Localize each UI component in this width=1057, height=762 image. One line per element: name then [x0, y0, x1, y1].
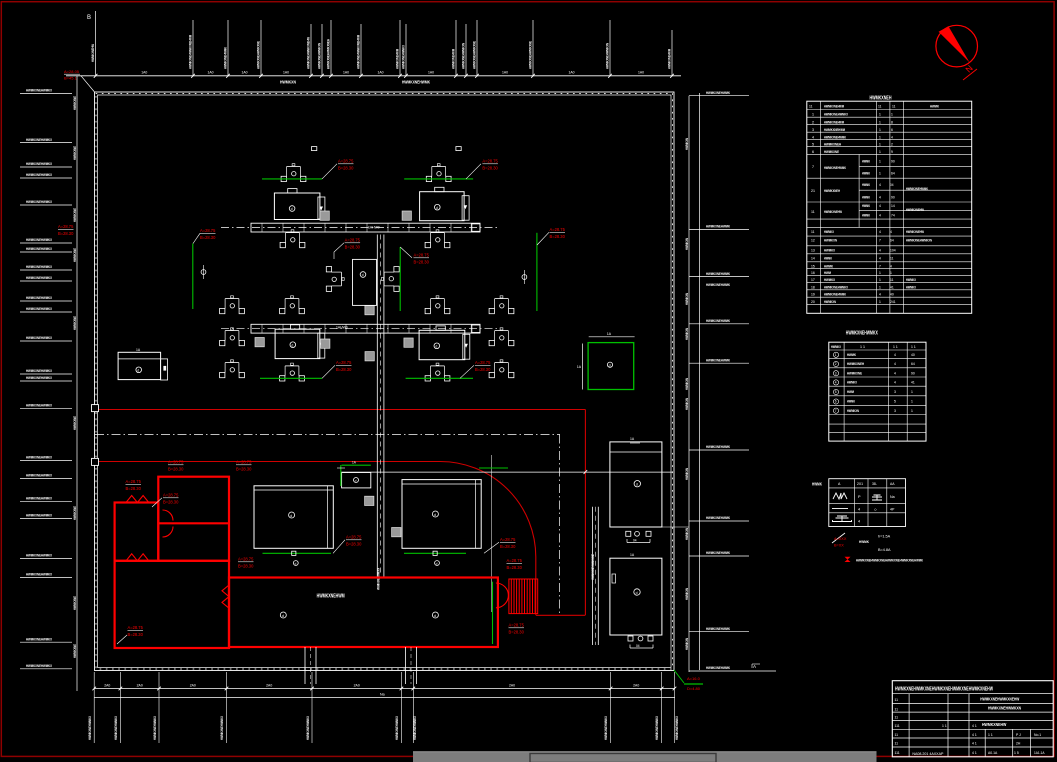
svg-text:1: 1 — [891, 113, 893, 117]
svg-text:d: d — [362, 273, 364, 277]
svg-text:1: 1 — [879, 285, 881, 289]
svg-text:HWMKXNEHWMKX: HWMKXNEHWMKX — [306, 716, 310, 740]
svg-text:HWMKXN: HWMKXN — [685, 528, 689, 540]
svg-text:d: d — [436, 206, 438, 210]
svg-text:1: 1 — [879, 128, 881, 132]
svg-text:7: 7 — [879, 264, 881, 268]
svg-text:11: 11 — [895, 742, 899, 746]
svg-text:HWMKXNEHWMKXN: HWMKXNEHWMKXN — [377, 568, 381, 590]
svg-text:3: 3 — [835, 371, 837, 375]
svg-text:HWMKXNEHWM: HWMKXNEHWM — [668, 49, 672, 69]
svg-text:HWMKXNEHWMKX: HWMKXNEHWMKX — [604, 716, 608, 740]
svg-text:HWMKXNEHWMKX: HWMKXNEHWMKX — [26, 513, 52, 518]
svg-text:HWMK: HWMK — [847, 400, 855, 404]
svg-text:2X1: 2X1 — [857, 482, 863, 486]
svg-text:11: 11 — [890, 256, 894, 260]
svg-text:B=28.30: B=28.30 — [550, 234, 566, 239]
svg-text:B=28.30: B=28.30 — [126, 486, 142, 491]
svg-text:d: d — [434, 614, 436, 618]
svg-text:A=16.0: A=16.0 — [687, 676, 701, 681]
svg-text:64: 64 — [891, 172, 895, 176]
svg-text:HWMKXNEHWMK: HWMKXNEHWMK — [824, 166, 846, 170]
svg-text:A=XXX: A=XXX — [834, 537, 847, 541]
svg-text:HWMKXNEHWMKX: HWMKXNEHWMKX — [413, 716, 417, 740]
svg-text:64: 64 — [911, 362, 915, 366]
svg-text:HWMKXNEHWM: HWMKXNEHWM — [824, 120, 844, 124]
svg-text:HWMKXNE: HWMKXNE — [73, 505, 77, 520]
svg-text:HWMKXNEHW: HWMKXNEHW — [906, 230, 924, 234]
svg-text:HWMKXNEHWMKXNEHW: HWMKXNEHWMKXNEHW — [307, 37, 311, 69]
svg-text:A=28.75: A=28.75 — [346, 535, 362, 540]
svg-text:2: 2 — [812, 120, 814, 124]
svg-text:4: 4 — [879, 256, 881, 260]
svg-text:1A0: 1A0 — [283, 71, 289, 75]
svg-text:HWMKXNEHWMKX: HWMKXNEHWMKX — [26, 375, 52, 380]
svg-text:4: 4 — [879, 230, 881, 234]
svg-text:7: 7 — [812, 165, 814, 169]
svg-text:HWMKXNEHWMKX: HWMKXNEHWMKX — [26, 161, 52, 166]
svg-text:HWMKXNEHWMKX: HWMKXNEHWMKX — [88, 716, 92, 740]
svg-text:1 1: 1 1 — [860, 345, 865, 349]
svg-text:d: d — [292, 343, 294, 347]
svg-text:HWMKXNEHWMK: HWMKXNEHWMK — [224, 47, 228, 69]
svg-text:4 1: 4 1 — [972, 751, 977, 755]
svg-text:1A0: 1A0 — [241, 71, 247, 75]
svg-text:HWMKXN: HWMKXN — [685, 293, 689, 305]
svg-text:HWMK: HWMK — [847, 353, 856, 357]
svg-text:11: 11 — [811, 230, 815, 234]
svg-text:HWMKXNEHWMKX: HWMKXNEHWMKX — [26, 553, 52, 558]
svg-text:d: d — [436, 345, 438, 349]
svg-text:HWMKXNEHWMKXNE: HWMKXNEHWMKXNE — [473, 41, 477, 69]
svg-text:HWMKXNEHWMKX: HWMKXNEHWMKX — [26, 295, 52, 300]
svg-text:HWMKXNEHWM: HWMKXNEHWM — [452, 49, 456, 69]
svg-text:B=28.30: B=28.30 — [128, 632, 144, 637]
svg-text:HWMKXNE: HWMKXNE — [73, 595, 77, 610]
svg-text:HWMKXNEHWMKXNEHWM: HWMKXNEHWMKXNEHWM — [357, 35, 361, 69]
svg-text:5: 5 — [812, 143, 814, 147]
svg-text:HWMKXNEHWMKXN: HWMKXNEHWMKXN — [318, 43, 322, 69]
svg-text:HWMKXNEHWMK: HWMKXNEHWMK — [706, 90, 730, 95]
svg-text:14: 14 — [891, 204, 895, 208]
svg-text:P J: P J — [1016, 733, 1021, 737]
svg-text:HWMKXNEHWMK: HWMKXNEHWMK — [706, 550, 730, 555]
svg-text:1: 1 — [879, 278, 881, 282]
svg-text:64: 64 — [890, 239, 894, 243]
svg-text:1A: 1A — [630, 437, 635, 441]
svg-text:d: d — [137, 368, 139, 372]
svg-text:4 1: 4 1 — [972, 733, 977, 737]
svg-text:B=28.30: B=28.30 — [200, 235, 216, 240]
svg-text:d: d — [636, 483, 638, 487]
svg-text:1 1: 1 1 — [893, 345, 898, 349]
svg-text:1: 1 — [911, 400, 913, 404]
svg-text:20: 20 — [811, 300, 815, 304]
svg-text:HWMKXNEH: HWMKXNEH — [824, 143, 841, 147]
svg-text:1: 1 — [879, 120, 881, 124]
svg-text:2: 2 — [891, 143, 893, 147]
svg-text:HWMKXN: HWMKXN — [824, 300, 836, 304]
svg-text:HWMKXNEHWM: HWMKXNEHWM — [317, 594, 345, 600]
svg-text:1A: 1A — [136, 348, 141, 352]
svg-text:A=28.75: A=28.75 — [414, 253, 430, 258]
svg-text:1AHW0: 1AHW0 — [368, 225, 380, 229]
svg-text:HWMKXNE: HWMKXNE — [73, 415, 77, 430]
svg-text:HWMKXNE: HWMKXNE — [73, 315, 77, 330]
svg-text:HWMKXNEH: HWMKXNEH — [847, 362, 864, 366]
svg-text:HWMKXN: HWMKXN — [824, 239, 837, 243]
svg-text:A: A — [753, 664, 756, 669]
svg-text:2A0: 2A0 — [104, 683, 110, 687]
svg-text:B=4.8A: B=4.8A — [878, 548, 891, 552]
svg-text:1A0: 1A0 — [377, 71, 383, 75]
svg-text:HWMKXNEHWMK: HWMKXNEHWMK — [706, 318, 730, 323]
svg-text:4: 4 — [894, 371, 896, 375]
svg-text:HWMKXNEHWMKX: HWMKXNEHWMKX — [26, 246, 52, 251]
svg-text:1A0: 1A0 — [568, 71, 574, 75]
svg-text:HWMKXNEHWMKX: HWMKXNEHWMKX — [26, 496, 52, 501]
svg-text:HWMKXNE: HWMKXNE — [73, 247, 77, 262]
svg-text:1: 1 — [879, 113, 881, 117]
svg-text:HWMKXN: HWMKXN — [685, 588, 689, 600]
svg-text:HWMKXNEHWMKXN: HWMKXNEHWMKXN — [606, 43, 610, 69]
svg-text:1: 1 — [890, 271, 892, 275]
svg-text:D=4.80: D=4.80 — [687, 686, 701, 691]
svg-text:HWMKXNEHWMKX: HWMKXNEHWMKX — [26, 335, 52, 340]
svg-text:HWMKXNEHWMKX: HWMKXNEHWMKX — [26, 275, 52, 280]
svg-text:HWMKXNEHWMKX: HWMKXNEHWMKX — [26, 455, 52, 460]
svg-text:4: 4 — [894, 381, 896, 385]
svg-text:1 1: 1 1 — [988, 733, 993, 737]
svg-text:HWMKXNEHWMKX: HWMKXNEHWMKX — [26, 137, 52, 142]
svg-text:19: 19 — [811, 292, 815, 296]
svg-text:HWMKXNEHWMKXNE: HWMKXNEHWMKXNE — [591, 553, 595, 580]
svg-text:HWMKXNEHW: HWMKXNEHW — [91, 44, 95, 62]
svg-text:HWMKXNEHWMK: HWMKXNEHWMK — [706, 665, 730, 670]
svg-text:A=28.75: A=28.75 — [336, 360, 352, 365]
svg-text:HWMKXNEHWMKX: HWMKXNEHWMKX — [655, 716, 659, 740]
svg-text:HWMKXNEHWMKX: HWMKXNEHWMKX — [395, 716, 399, 740]
svg-text:Na: Na — [890, 495, 895, 499]
svg-text:4: 4 — [890, 230, 892, 234]
svg-text:B=28.30: B=28.30 — [238, 564, 254, 569]
svg-text:11: 11 — [892, 104, 896, 108]
svg-text:1A0: 1A0 — [343, 71, 349, 75]
svg-text:A=28.75: A=28.75 — [482, 159, 498, 164]
svg-text:HWMKXN: HWMKXN — [685, 378, 689, 390]
svg-text:1A0: 1A0 — [502, 71, 508, 75]
svg-text:40: 40 — [911, 353, 915, 357]
svg-text:B=28.30: B=28.30 — [500, 544, 516, 549]
svg-text:11: 11 — [890, 278, 894, 282]
svg-text:1: 1 — [879, 143, 881, 147]
svg-text:1: 1 — [879, 160, 881, 164]
svg-text:04: 04 — [633, 539, 637, 543]
svg-text:HWMKXNEHWMK: HWMKXNEHWMK — [706, 444, 730, 449]
svg-text:1: 1 — [835, 353, 837, 357]
svg-text:A=28.75: A=28.75 — [550, 227, 566, 232]
svg-text:4: 4 — [894, 353, 896, 357]
svg-text:d: d — [290, 514, 292, 518]
svg-text:2: 2 — [835, 362, 837, 366]
svg-text:1: 1 — [879, 271, 881, 275]
svg-text:B=45.1: B=45.1 — [64, 76, 78, 81]
svg-text:HWMK: HWMK — [824, 264, 833, 268]
svg-text:6: 6 — [812, 150, 814, 154]
svg-text:4: 4 — [894, 362, 896, 366]
svg-text:4P: 4P — [890, 507, 895, 511]
svg-text:HWMKXNEHWMKXN: HWMKXNEHWMKXN — [906, 239, 932, 243]
svg-text:HWMKXNEHWMKX: HWMKXNEHWMKX — [846, 331, 878, 337]
svg-text:A=28.75: A=28.75 — [475, 360, 491, 365]
svg-text:A=28.75: A=28.75 — [128, 625, 144, 630]
svg-text:HWMKXNEHWMK: HWMKXNEHWMK — [402, 80, 430, 85]
svg-text:HWMKXNEHWMK: HWMKXNEHWMK — [906, 187, 928, 191]
svg-text:HWMKXNEHWMK: HWMKXNEHWMK — [706, 626, 730, 631]
svg-text:HWMKXNEHWMKX: HWMKXNEHWMKX — [26, 172, 52, 177]
svg-text:B: B — [87, 15, 91, 21]
svg-text:1: 1 — [911, 390, 913, 394]
svg-text:B=28.30: B=28.30 — [236, 467, 252, 472]
svg-text:B=28.30: B=28.30 — [168, 467, 184, 472]
svg-text:HWMKXNEHWMKXNEHWMKXNEHWMKXNEHW: HWMKXNEHWMKXNEHWMKXNEHWMKXNEHWMK — [856, 558, 923, 563]
svg-text:B=28.30: B=28.30 — [345, 245, 361, 250]
svg-text:No.1: No.1 — [1034, 733, 1041, 737]
svg-text:HWMKXNEHWMKX: HWMKXNEHWMKX — [26, 403, 52, 408]
svg-text:HWMKXNEHWMKX: HWMKXNEHWMKX — [26, 636, 52, 641]
svg-text:HWMKXNEHWMKX: HWMKXNEHWMKX — [26, 237, 52, 242]
svg-text:HWMKXNEHWMKX: HWMKXNEHWMKX — [824, 285, 848, 289]
svg-text:1 1: 1 1 — [911, 345, 916, 349]
svg-text:11: 11 — [895, 698, 899, 702]
svg-text:d: d — [434, 513, 436, 517]
svg-text:A=28.05: A=28.05 — [64, 69, 80, 74]
svg-text:2A0: 2A0 — [509, 683, 515, 687]
svg-text:B=28.30: B=28.30 — [346, 542, 362, 547]
svg-text:4: 4 — [879, 183, 881, 187]
svg-text:HWMKXNEHWMKXN: HWMKXNEHWMKXN — [462, 43, 466, 69]
svg-text:HWMKXN: HWMKXN — [685, 138, 689, 150]
svg-text:HWMKXNEHWMKX: HWMKXNEHWMKX — [26, 473, 52, 478]
svg-text:HWMKXNEHWMKX: HWMKXNEHWMKX — [26, 368, 52, 373]
svg-text:B=28.30: B=28.30 — [414, 260, 430, 265]
svg-text:4: 4 — [879, 196, 881, 200]
svg-text:HWMKXNEHWM: HWMKXNEHWM — [824, 128, 845, 132]
svg-text:HWMK: HWMK — [824, 256, 832, 260]
svg-text:Na: Na — [380, 692, 385, 696]
svg-text:HWMK: HWMK — [812, 482, 822, 487]
svg-text:A=28.75: A=28.75 — [338, 159, 354, 164]
svg-text:HWMKXNEHWMKX: HWMKXNEHWMKX — [26, 663, 52, 668]
svg-text:B=28.30: B=28.30 — [338, 166, 354, 171]
svg-text:1: 1 — [911, 409, 913, 413]
svg-text:A=28.75: A=28.75 — [236, 460, 252, 465]
svg-text:A=28.75: A=28.75 — [345, 238, 361, 243]
svg-text:HWMKXNEHWMKXNE: HWMKXNEHWMKXNE — [257, 41, 261, 69]
svg-text:HWMKXNEHW: HWMKXNEHW — [906, 208, 924, 212]
svg-text:HWMKXNEHWM: HWMKXNEHWM — [824, 104, 844, 108]
svg-text:2A0: 2A0 — [190, 683, 196, 687]
svg-text:HWMKXNEHWMKX: HWMKXNEHWMKX — [402, 45, 406, 69]
svg-text:16: 16 — [811, 271, 815, 275]
svg-text:1AHW0: 1AHW0 — [336, 325, 348, 329]
svg-text:HWMKXNEHWMKXNE: HWMKXNEHWMKXNE — [529, 41, 533, 69]
svg-text:HWMK: HWMK — [859, 539, 869, 544]
svg-text:HWMKXNEHWMKXN: HWMKXNEHWMKXN — [988, 706, 1021, 711]
svg-text:41: 41 — [890, 285, 894, 289]
svg-text:11: 11 — [811, 210, 815, 214]
svg-text:HWMKXNE: HWMKXNE — [824, 150, 839, 154]
svg-text:HWMK: HWMK — [862, 214, 870, 218]
svg-text:1: 1 — [879, 300, 881, 304]
svg-text:1: 1 — [879, 172, 881, 176]
svg-text:HWMKX: HWMKX — [906, 278, 916, 282]
svg-text:HWMKXNEH: HWMKXNEH — [824, 189, 840, 193]
svg-text:HWMKXNEHWMK: HWMKXNEHWMK — [706, 224, 730, 229]
svg-text:1 1: 1 1 — [942, 724, 947, 728]
svg-text:4: 4 — [812, 135, 814, 139]
svg-text:HWMKX: HWMKX — [824, 278, 835, 282]
svg-text:1 5: 1 5 — [1014, 751, 1019, 755]
svg-text:d: d — [291, 207, 293, 211]
svg-text:A=28.75: A=28.75 — [500, 537, 516, 542]
svg-text:HWMK: HWMK — [862, 196, 870, 200]
svg-text:2A0: 2A0 — [137, 683, 143, 687]
svg-text:13: 13 — [811, 248, 815, 252]
svg-text:HWMKXN: HWMKXN — [685, 468, 689, 480]
svg-text:90: 90 — [891, 160, 895, 164]
svg-text:HWMKXN: HWMKXN — [685, 238, 689, 250]
svg-text:1: 1 — [879, 150, 881, 154]
svg-text:HWMKXNEHWM: HWMKXNEHWM — [396, 49, 400, 69]
svg-text:HWMKXNEHWMKXNEHWMKXNEHWMKXNEHW: HWMKXNEHWMKXNEHWMKXNEHWMKXNEHWMKXNEHW — [895, 687, 993, 693]
svg-text:HWMKXNE: HWMKXNE — [73, 95, 77, 110]
svg-text:HWMKXNEHW: HWMKXNEHW — [824, 210, 842, 214]
svg-text:B=28.30: B=28.30 — [475, 367, 491, 372]
svg-text:4: 4 — [879, 248, 881, 252]
svg-text:HWMK: HWMK — [930, 104, 939, 108]
svg-text:HWMKX: HWMKX — [831, 345, 841, 349]
svg-text:4 1: 4 1 — [972, 742, 977, 746]
svg-text:4: 4 — [890, 264, 892, 268]
svg-text:04: 04 — [636, 644, 640, 648]
svg-text:7: 7 — [835, 409, 837, 413]
svg-text:B=28.30: B=28.30 — [509, 630, 525, 635]
svg-text:B=28.30: B=28.30 — [163, 500, 179, 505]
svg-text:AA: AA — [890, 482, 895, 486]
svg-text:HWMKX: HWMKX — [906, 285, 916, 289]
svg-text:A=28.75: A=28.75 — [509, 623, 525, 628]
svg-text:B=28.30: B=28.30 — [336, 367, 352, 372]
svg-text:6: 6 — [835, 400, 837, 404]
svg-text:h=1.5A: h=1.5A — [878, 535, 891, 539]
svg-text:HWMKXNE: HWMKXNE — [847, 371, 862, 375]
svg-text:B=28.30: B=28.30 — [482, 166, 498, 171]
svg-text:HWMK: HWMK — [862, 183, 870, 187]
svg-text:HWMK: HWMK — [862, 160, 870, 164]
svg-text:18: 18 — [811, 285, 815, 289]
svg-text:HWMKXNEHWMKX: HWMKXNEHWMKX — [824, 113, 848, 117]
svg-text:HWM: HWM — [847, 390, 854, 394]
svg-text:HWMKXNEHWMKXNEH: HWMKXNEHWMKXNEH — [327, 39, 331, 69]
svg-text:HWMKXNEHWMKXNEHW: HWMKXNEHWMKXNEHW — [980, 697, 1019, 702]
svg-text:4: 4 — [879, 214, 881, 218]
svg-text:104: 104 — [890, 248, 896, 252]
svg-text:2H: 2H — [1016, 742, 1021, 746]
svg-text:4: 4 — [858, 507, 860, 511]
svg-text:6: 6 — [891, 128, 893, 132]
svg-text:1A: 1A — [577, 365, 582, 369]
svg-text:90: 90 — [911, 371, 915, 375]
svg-text:4: 4 — [879, 204, 881, 208]
svg-text:HWMKXNEHWMKX: HWMKXNEHWMKX — [220, 716, 224, 740]
svg-text:11: 11 — [878, 104, 882, 108]
svg-text:HWMKXNEHWMK: HWMKXNEHWMK — [706, 282, 730, 287]
svg-text:HWMKXN: HWMKXN — [280, 80, 297, 85]
svg-text:HWMKXNEH: HWMKXNEH — [870, 96, 892, 102]
svg-text:A=28.75: A=28.75 — [168, 460, 184, 465]
svg-text:4: 4 — [879, 292, 881, 296]
svg-text:HWMKXNE: HWMKXNE — [73, 207, 77, 222]
svg-text:HWMKXNEHWMKX: HWMKXNEHWMKX — [26, 264, 52, 269]
svg-text:HWMKXNEHWMKX: HWMKXNEHWMKX — [114, 716, 118, 740]
svg-text:17: 17 — [811, 278, 815, 282]
svg-text:A=28.75: A=28.75 — [507, 558, 523, 563]
svg-text:12: 12 — [811, 239, 815, 243]
svg-text:3: 3 — [812, 128, 814, 132]
svg-text:HWMKXNEHWMK: HWMKXNEHWMK — [824, 135, 846, 139]
svg-text:3: 3 — [894, 390, 896, 394]
svg-text:4 1: 4 1 — [972, 724, 977, 728]
svg-text:2A0: 2A0 — [354, 683, 360, 687]
svg-text:11: 11 — [809, 104, 813, 108]
svg-text:HWMKXNEHWMKXNEHWM: HWMKXNEHWMKXNEHWM — [189, 35, 193, 69]
svg-text:4: 4 — [891, 135, 893, 139]
svg-text:04: 04 — [890, 183, 894, 187]
svg-text:1A0: 1A0 — [428, 71, 434, 75]
svg-text:1: 1 — [879, 135, 881, 139]
svg-text:d: d — [282, 614, 284, 618]
svg-text:21: 21 — [811, 189, 815, 193]
svg-text:241: 241 — [890, 300, 896, 304]
svg-text:HWMKXNEHWMK: HWMKXNEHWMK — [706, 357, 730, 362]
svg-text:HWMKXNEHWMK: HWMKXNEHWMK — [824, 292, 846, 296]
svg-text:38-: 38- — [872, 482, 877, 486]
svg-text:HWM: HWM — [824, 271, 831, 275]
svg-text:HWMKXNE: HWMKXNE — [73, 145, 77, 160]
svg-text:HWMKX: HWMKX — [824, 230, 834, 234]
svg-text:HWMKXNEHWMKX: HWMKXNEHWMKX — [675, 716, 679, 740]
svg-text:A=28.75: A=28.75 — [238, 557, 254, 562]
svg-text:A=28.75: A=28.75 — [126, 479, 142, 484]
svg-text:8: 8 — [891, 120, 893, 124]
svg-text:14: 14 — [811, 256, 815, 260]
svg-text:111: 111 — [895, 751, 900, 755]
svg-text:A=28.75: A=28.75 — [200, 228, 216, 233]
svg-text:HWMKXNEHWMKX: HWMKXNEHWMKX — [153, 716, 157, 740]
svg-text:HWMKX: HWMKX — [824, 248, 835, 252]
svg-text:11: 11 — [895, 715, 899, 719]
svg-text:2A0: 2A0 — [633, 683, 639, 687]
svg-text:2A0: 2A0 — [266, 683, 272, 687]
svg-text:HWMKXNEHWMKX: HWMKXNEHWMKX — [26, 88, 52, 93]
svg-text:HWMKXN: HWMKXN — [847, 409, 859, 413]
svg-text:HWMK: HWMK — [862, 172, 870, 176]
svg-text:B=28.30: B=28.30 — [507, 565, 523, 570]
svg-text:4: 4 — [858, 519, 860, 523]
svg-text:1: 1 — [812, 113, 814, 117]
svg-text:NA08.201 4AXXAP: NA08.201 4AXXAP — [912, 752, 944, 756]
